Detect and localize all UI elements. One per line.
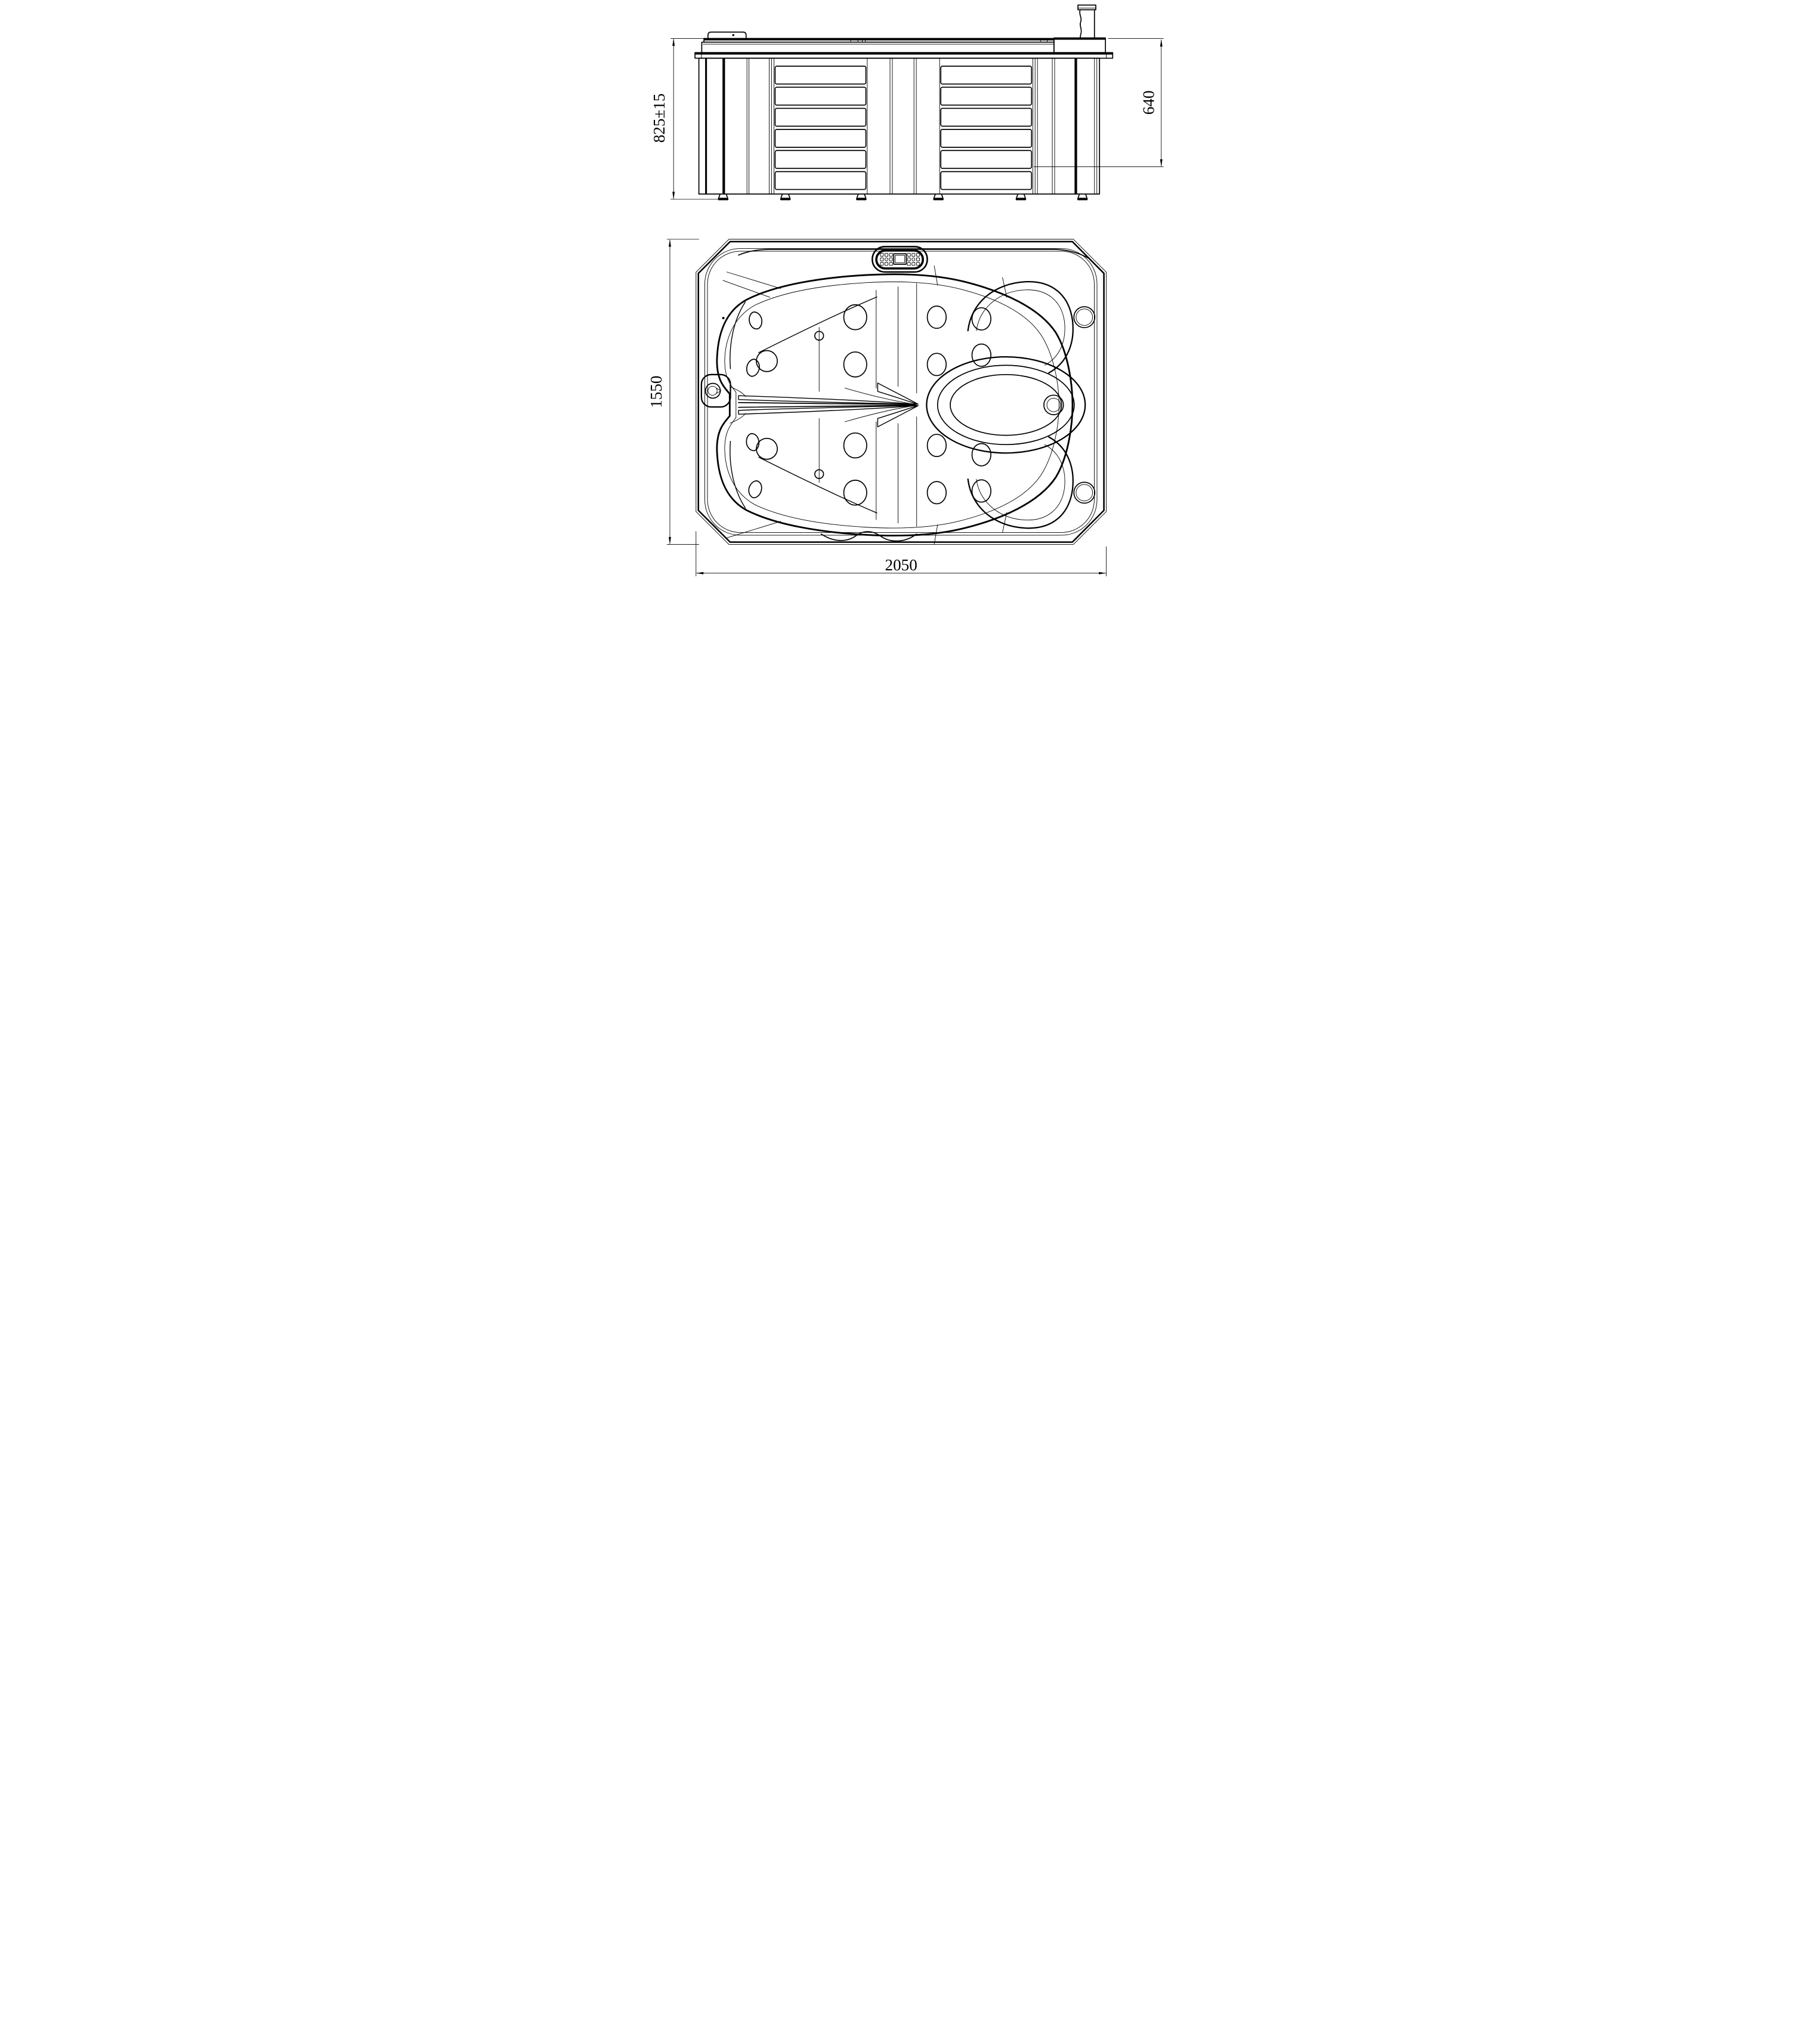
dim-overall-width: 1550 — [651, 239, 699, 545]
tub-rim — [716, 274, 1072, 541]
dim-label-depth: 640 — [1139, 91, 1157, 115]
side-rim — [695, 32, 1112, 58]
keypad-right-icon — [907, 253, 919, 265]
pinhole-dot — [722, 317, 724, 319]
topside-control-panel — [707, 32, 746, 39]
dim-label-height: 825±15 — [651, 94, 668, 143]
dim-label-width: 1550 — [651, 376, 665, 408]
display-icon — [894, 254, 906, 264]
side-view: 825±15 640 — [651, 5, 1163, 200]
plan-shell — [696, 239, 1106, 545]
drawing-sheet: 825±15 640 — [651, 0, 1164, 578]
footwell — [926, 357, 1085, 453]
lounge-seats — [722, 272, 918, 538]
drain-icon — [1043, 395, 1063, 415]
foot — [718, 194, 728, 200]
control-panel — [872, 246, 927, 271]
center-divider — [730, 383, 917, 427]
foot — [856, 194, 867, 200]
cup-holder-icon — [1074, 482, 1095, 503]
plan-view: 1550 2050 — [651, 239, 1107, 576]
side-skirt — [699, 58, 1099, 200]
leveling-feet — [718, 194, 1087, 200]
dim-overall-length: 2050 — [696, 532, 1106, 576]
foot — [780, 194, 790, 200]
keypad-left-icon — [880, 253, 892, 265]
cup-holder-icon — [1074, 307, 1095, 328]
dim-label-length: 2050 — [885, 556, 917, 574]
foot — [933, 194, 944, 200]
teardrop-jet-icon — [745, 310, 764, 499]
rim-corner-step — [1053, 38, 1105, 53]
louver-panel-right — [941, 66, 1031, 190]
louver-panel-left — [775, 66, 866, 190]
panel-indicator-dot — [732, 34, 734, 36]
corner-seats — [934, 265, 1073, 544]
dim-overall-height: 825±15 — [651, 38, 719, 199]
technical-drawing: 825±15 640 — [651, 0, 1164, 578]
foot — [1015, 194, 1026, 200]
jets — [745, 305, 991, 505]
back-jet-icon — [814, 305, 866, 505]
cup-holders — [1074, 307, 1095, 503]
foot — [1077, 194, 1087, 200]
waterfall-pipe — [1078, 5, 1096, 38]
floor-jet-icon — [927, 306, 991, 504]
